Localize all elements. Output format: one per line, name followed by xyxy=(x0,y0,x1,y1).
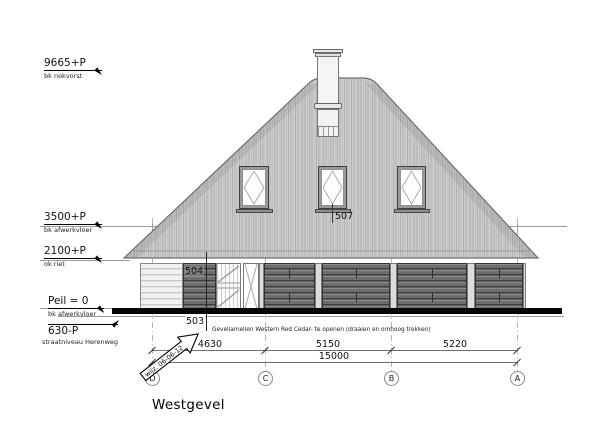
tag-lamellen-lower: 503 xyxy=(185,316,205,327)
grid-bubble-c: C xyxy=(258,371,273,386)
grid-bubble-b: B xyxy=(384,371,399,386)
roof-window-center xyxy=(318,166,347,209)
tag-507-leader xyxy=(332,204,333,223)
side-door xyxy=(243,263,259,310)
panel-mark xyxy=(289,293,290,302)
grid-bubble-a: A xyxy=(510,371,525,386)
panel-mark xyxy=(499,293,500,302)
panel-mark xyxy=(432,269,433,278)
level-value: 3500+P xyxy=(44,211,86,223)
level-marker-3500: 3500+P bk afwerkvloer xyxy=(44,212,102,234)
level-value: 2100+P xyxy=(44,245,86,257)
level-marker-peil: Peil = 0 bk afwerkvloer xyxy=(48,296,104,318)
level-desc: straatniveau Herenweg xyxy=(42,339,118,346)
panel-mark xyxy=(499,269,500,278)
level-marker-nokvorst: 9665+P bk nokvorst xyxy=(44,58,102,80)
elevation-drawing: 507 504 503 9665+P bk nokv xyxy=(0,0,600,442)
arrow-up-right-icon xyxy=(110,320,119,329)
dim-segment-ba: 5220 xyxy=(420,339,490,350)
level-desc: bk afwerkvloer xyxy=(44,227,102,234)
level-value: Peil = 0 xyxy=(48,295,88,307)
facade-post-2 xyxy=(390,263,397,310)
tag-roof-window: 507 xyxy=(335,211,353,222)
facade-post-3 xyxy=(467,263,475,310)
level-desc: bk nokvorst xyxy=(44,73,102,80)
dim-total: 15000 xyxy=(299,351,369,362)
level-desc: bk afwerkvloer xyxy=(48,311,104,318)
level-desc: ok riet xyxy=(44,261,102,268)
dim-segment-cb: 5150 xyxy=(293,339,363,350)
revision-arrow: wijz. 06-06-12 xyxy=(133,327,228,387)
barn-door xyxy=(216,263,241,310)
roof-window-right-sill xyxy=(394,209,430,213)
facade-light-slats xyxy=(140,263,183,310)
chimney-stack-upper xyxy=(317,57,339,104)
roof-window-left xyxy=(239,166,269,209)
panel-mark xyxy=(356,293,357,302)
chimney-stack-lower xyxy=(317,109,339,137)
roof-window-right xyxy=(397,166,426,209)
street-level-line xyxy=(58,316,564,317)
panel-mark xyxy=(289,269,290,278)
drawing-title: Westgevel xyxy=(152,397,225,413)
level-marker-street: 630-P straatniveau Herenweg xyxy=(42,324,118,346)
roof-window-left-sill xyxy=(236,209,273,213)
panel-mark xyxy=(356,269,357,278)
facade-edge-cap xyxy=(523,263,526,310)
facade-note: Gevellamellen Western Red Cedar- te open… xyxy=(212,327,431,333)
tag-504-leader xyxy=(206,252,207,331)
panel-mark xyxy=(432,293,433,302)
level-value: 630-P xyxy=(48,325,78,337)
facade-post-1 xyxy=(315,263,322,310)
tag-lamellen-upper: 504 xyxy=(184,266,204,277)
chimney-brick-grid xyxy=(318,126,338,136)
ground-line xyxy=(112,308,562,314)
level-marker-2100: 2100+P ok riet xyxy=(44,246,102,268)
level-value: 9665+P xyxy=(44,57,86,69)
revision-note: wijz. 06-06-12 xyxy=(143,344,185,379)
